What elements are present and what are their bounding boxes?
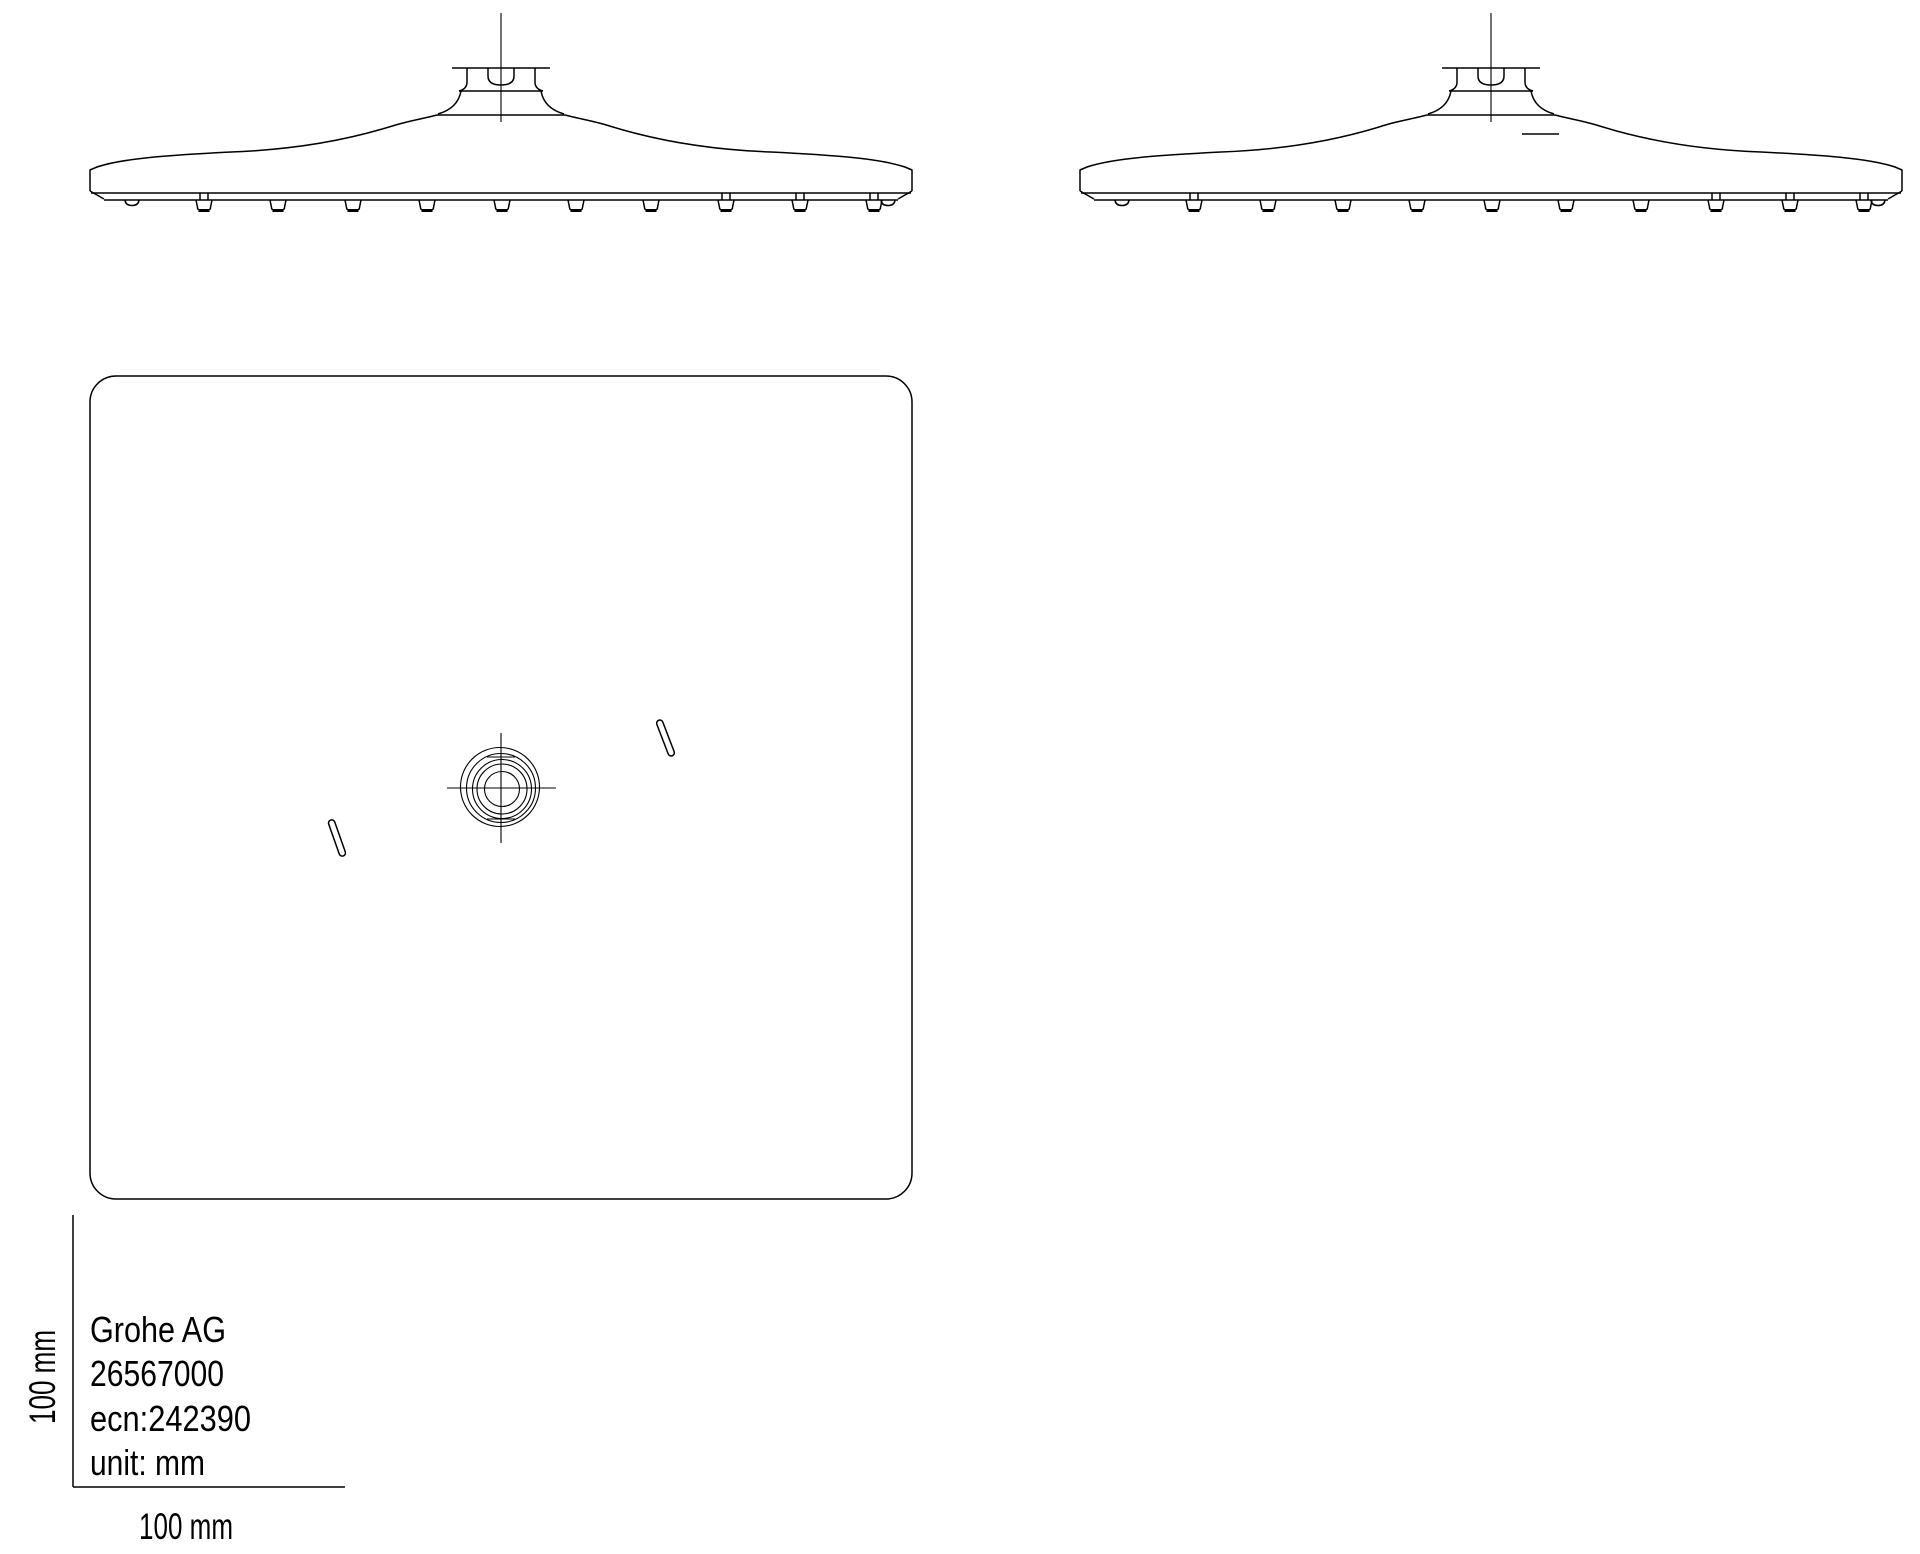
plan-view xyxy=(90,376,912,1199)
cad-drawing-sheet: 100 mm 100 mm Grohe AG 26567000 ecn:2423… xyxy=(0,0,1920,1554)
spray-slot-right xyxy=(656,719,676,757)
title-unit: unit: mm xyxy=(90,1442,205,1483)
center-inlet-boss xyxy=(447,733,556,843)
title-ecn: ecn:242390 xyxy=(90,1398,251,1439)
horizontal-scale-label: 100 mm xyxy=(139,1506,233,1547)
title-company: Grohe AG xyxy=(90,1309,226,1350)
front-elevation-view xyxy=(90,13,912,211)
spray-slot-left xyxy=(328,819,347,857)
title-product-number: 26567000 xyxy=(90,1353,224,1394)
side-elevation-view xyxy=(1080,13,1902,211)
title-block: Grohe AG 26567000 ecn:242390 unit: mm xyxy=(90,1309,251,1483)
vertical-scale-label: 100 mm xyxy=(22,1330,63,1424)
technical-drawing-canvas: 100 mm 100 mm Grohe AG 26567000 ecn:2423… xyxy=(0,0,1920,1554)
